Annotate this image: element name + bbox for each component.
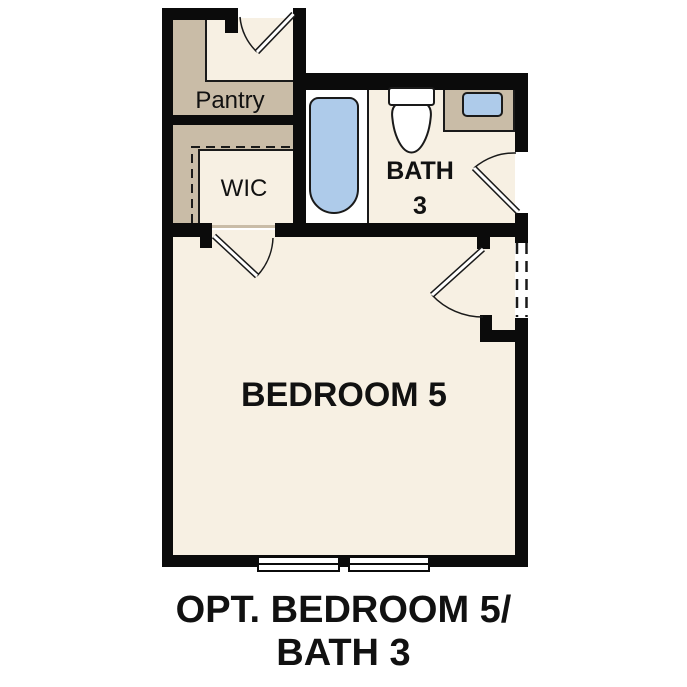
caption-line-1: OPT. BEDROOM 5/ [0,589,687,632]
pantry-label: Pantry [186,87,274,115]
bath-label: BATH 3 [383,154,457,224]
bath-door [474,153,518,212]
wic-label: WIC [200,175,288,203]
bedroom-label: BEDROOM 5 [173,376,515,415]
plan-linework [0,0,687,687]
toilet-tank [389,88,434,105]
toilet-bowl [392,104,431,153]
pantry-door [240,14,294,52]
bedroom-door-arc [432,295,483,317]
caption-line-2: BATH 3 [0,632,687,675]
toilet [389,88,434,153]
floor-plan: Pantry WIC BATH 3 BEDROOM 5 OPT. BEDROOM… [0,0,687,687]
wic-door [214,236,273,276]
bath-label-number: 3 [383,189,457,224]
wic-door-arc [257,238,273,276]
bath-label-word: BATH [383,154,457,189]
pantry-door-arc [240,17,257,52]
bedroom-door [432,249,483,317]
bath-door-arc [474,153,516,168]
plan-caption: OPT. BEDROOM 5/ BATH 3 [0,589,687,675]
